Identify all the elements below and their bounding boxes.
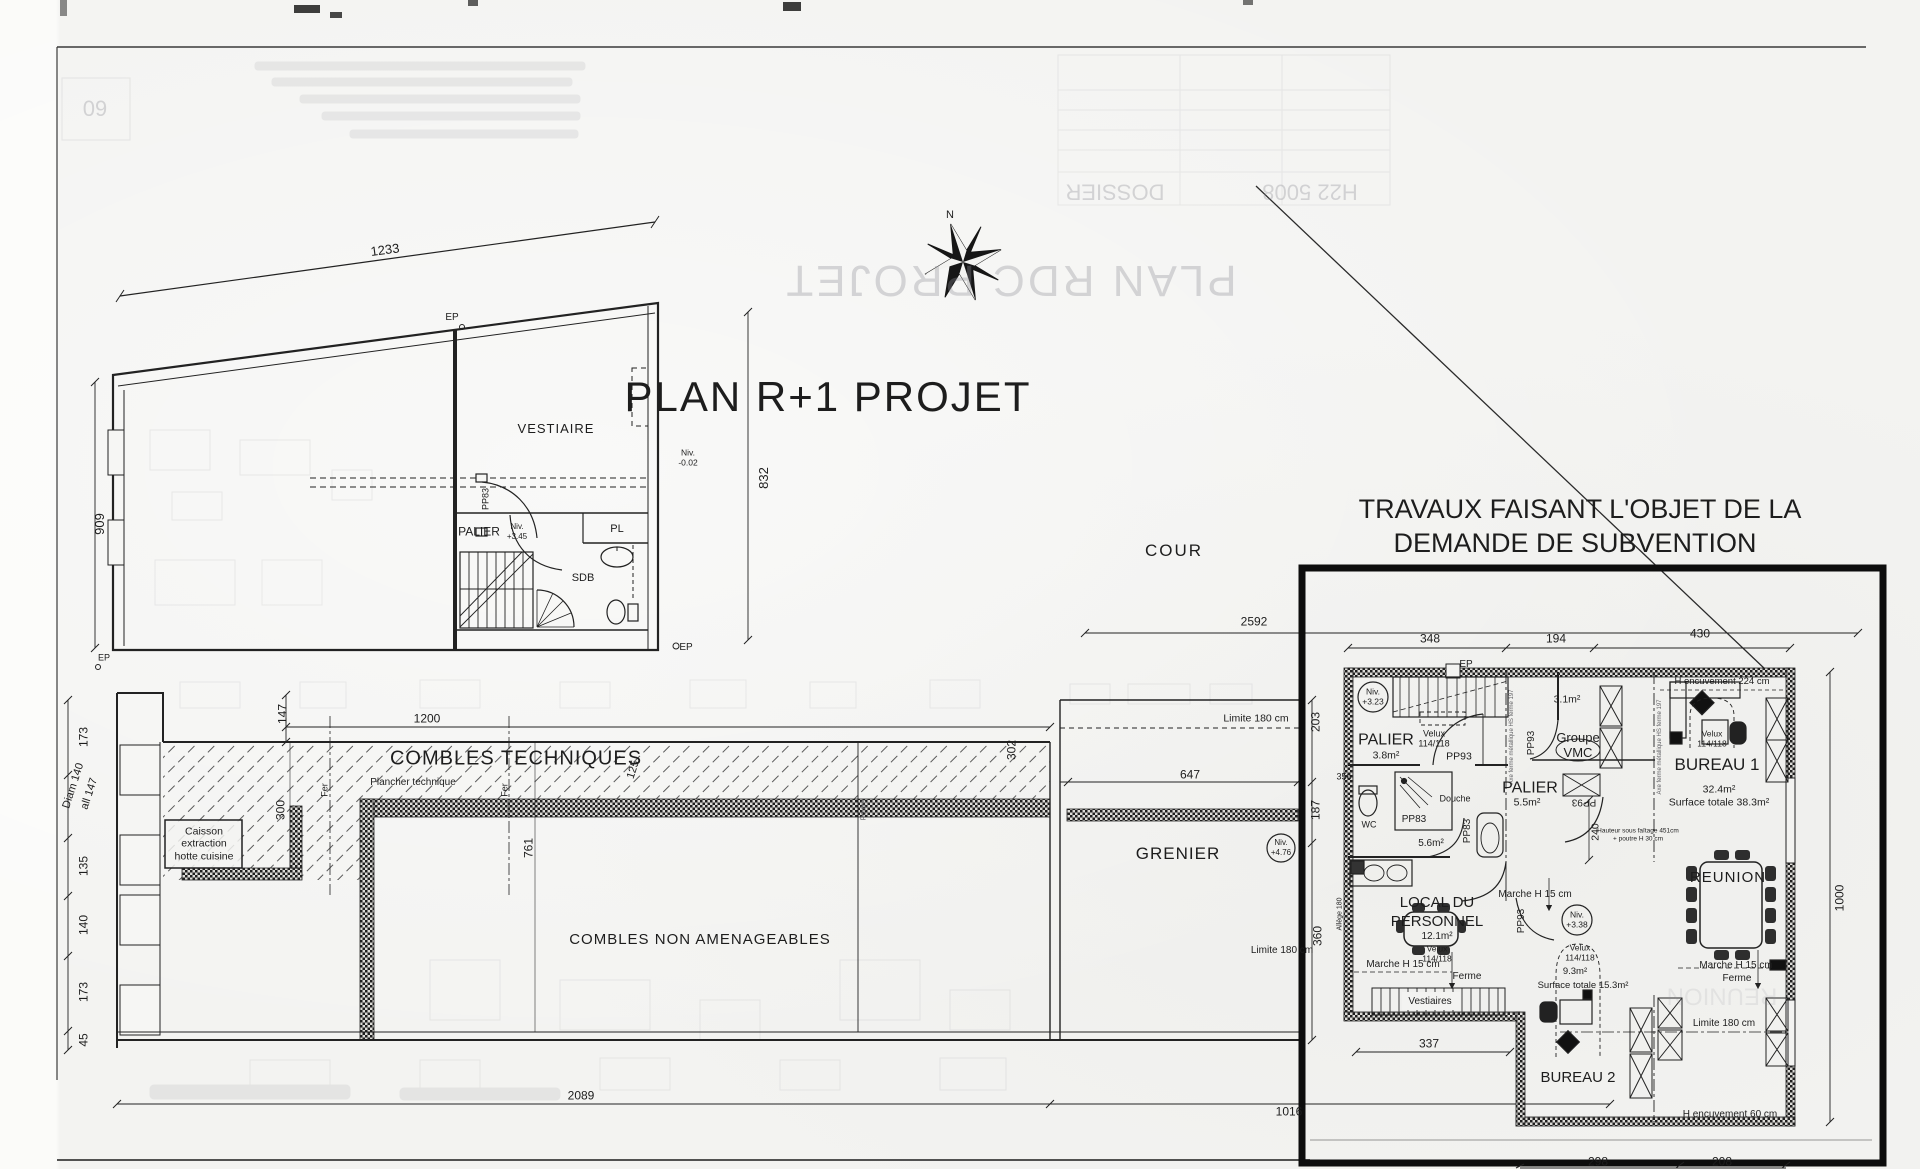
caisson-l1: Caisson — [185, 826, 223, 837]
dim-173b: 173 — [78, 982, 91, 1002]
door-pp93-vmc: PP93 — [1527, 731, 1538, 755]
local-surface: 12.1m² — [1421, 932, 1452, 943]
axis-fer-1: Fer — [320, 783, 329, 797]
marche-local: Marche H 15 cm — [1366, 960, 1439, 971]
palier-2-surface: 5.5m² — [1514, 797, 1541, 808]
room-bureau-2: BUREAU 2 — [1540, 1070, 1615, 1086]
marche-palier2: Marche H 15 cm — [1498, 890, 1571, 901]
bleed-mirrored-title: PLAN RDC PROJET — [783, 257, 1236, 303]
ferme-reunion: Ferme — [1723, 974, 1752, 985]
dim-1200: 1200 — [414, 713, 441, 726]
dim-194: 194 — [1546, 633, 1566, 646]
room-sdb: SDB — [572, 573, 595, 585]
dim-298: 298 — [1588, 1156, 1608, 1169]
niv-323-l1: Niv. — [1366, 688, 1380, 697]
velux-b1-l2: 114/118 — [1697, 740, 1726, 749]
door-pp83-upper: PP83 — [481, 488, 490, 510]
limite-180-bureau2: Limite 180 cm — [1693, 1019, 1755, 1030]
velux-b1-l1: Velux — [1702, 730, 1723, 739]
dim-208: 208 — [1712, 1156, 1732, 1169]
dim-147: 147 — [277, 704, 290, 724]
groupe-vmc-l2: VMC — [1564, 746, 1593, 760]
dim-45: 45 — [78, 1033, 91, 1046]
dim-135: 135 — [78, 856, 91, 876]
bureau-2-surface: 9.3m² — [1563, 967, 1587, 977]
vmc-surface: 3.1m² — [1554, 694, 1581, 705]
ep-roof-label: EP — [445, 313, 458, 324]
dim-203: 203 — [1310, 712, 1323, 732]
room-local-l2: PERSONNEL — [1391, 914, 1484, 930]
door-pp93-flip: PP93 — [1572, 796, 1596, 807]
niv-476-l1: Niv. — [1274, 839, 1287, 847]
room-pl: PL — [610, 524, 623, 536]
room-combles-non-amenageables: COMBLES NON AMENAGEABLES — [569, 932, 831, 948]
axis-poutre: Poutre — [860, 800, 867, 821]
room-local-l1: LOCAL DU — [1400, 895, 1474, 911]
room-combles-techniques: COMBLES TECHNIQUES — [390, 749, 642, 770]
dim-1000: 1000 — [1834, 885, 1847, 912]
bleed-titleblock-left: DOSSIER — [1065, 180, 1164, 203]
label-layer: PLAN R+1 PROJET TRAVAUX FAISANT L'OBJET … — [0, 0, 1920, 1169]
ep-zone-label: EP — [1459, 660, 1472, 671]
caisson-l3: hotte cuisine — [175, 851, 234, 862]
subvention-note-line2: DEMANDE DE SUBVENTION — [1393, 529, 1756, 557]
bleed-sheet-number: 60 — [83, 96, 107, 119]
dim-allege-180: Allège 180 — [1336, 897, 1343, 930]
niv-minus002-l2: -0.02 — [678, 459, 697, 468]
compass-north-label: N — [946, 210, 954, 222]
dim-140: 140 — [78, 915, 91, 935]
axis-ferme-1: Axe ferme métallique HS ferme 197 — [1509, 689, 1515, 784]
groupe-vmc-l1: Groupe — [1556, 731, 1599, 745]
ep-attic-label: EP — [98, 653, 110, 662]
dim-125: 125 — [626, 759, 643, 780]
sdb-surface: 5.6m² — [1418, 839, 1444, 850]
note-encuvement-224: H encuvement 224 cm — [1674, 677, 1769, 687]
dim-300: 300 — [275, 800, 288, 820]
note-plancher-technique: Plancher technique — [370, 778, 456, 789]
limite-180-grenier-haut: Limite 180 cm — [1223, 713, 1288, 724]
closet-vestiaires: Vestiaires — [1408, 997, 1451, 1008]
bureau-1-surface-totale: Surface totale 38.3m² — [1669, 797, 1769, 808]
door-pp93-bureau2: PP93 — [1517, 909, 1528, 933]
niv-338-l1: Niv. — [1570, 911, 1584, 920]
door-pp83-a: PP83 — [1402, 815, 1426, 826]
dim-2592: 2592 — [1241, 616, 1268, 629]
note-faitage-l1: Hauteur sous faîtage 451cm — [1597, 829, 1679, 836]
door-pp93-palier: PP93 — [1446, 751, 1472, 762]
scanned-plan-sheet: PLAN R+1 PROJET TRAVAUX FAISANT L'OBJET … — [0, 0, 1920, 1169]
dim-356: 356 — [1336, 772, 1351, 781]
dim-430: 430 — [1690, 628, 1710, 641]
niv-476-l2: +4.76 — [1271, 849, 1291, 857]
limite-180-grenier-bas: Limite 180 cm — [1251, 946, 1313, 957]
dim-all147: all 147 — [79, 777, 100, 811]
dim-647: 647 — [1180, 769, 1200, 782]
niv-345-l2: +3.45 — [507, 533, 527, 541]
caisson-l2: extraction — [181, 838, 227, 849]
room-reunion: REUNION — [1690, 870, 1766, 886]
door-pp83-b: PP83 — [1463, 819, 1474, 843]
dim-337: 337 — [1419, 1038, 1439, 1051]
fixture-douche: Douche — [1439, 794, 1470, 803]
dim-909: 909 — [93, 513, 107, 535]
velux-local-l1: Velux — [1427, 945, 1448, 954]
dim-348: 348 — [1420, 633, 1440, 646]
room-palier-upper: PALIER — [458, 526, 500, 539]
dim-173a: 173 — [78, 727, 91, 747]
fixture-wc: WC — [1362, 820, 1377, 829]
dim-187: 187 — [1310, 800, 1323, 820]
velux-b2-l2: 114/118 — [1565, 954, 1594, 963]
room-vestiaire: VESTIAIRE — [518, 422, 595, 436]
dim-360: 360 — [1312, 926, 1325, 946]
velux-b2-l1: Velux — [1570, 944, 1591, 953]
axis-ferme-2: Axe ferme métallique HS ferme 197 — [1657, 699, 1663, 794]
ferme-local: Ferme — [1453, 972, 1482, 983]
axis-fer-2: Fer — [500, 783, 509, 797]
room-palier-2: PALIER — [1502, 781, 1558, 798]
bleed-mirrored-room: REUNION — [1667, 983, 1778, 1008]
bleed-titleblock-right: H22 5008 — [1262, 180, 1357, 203]
dim-832: 832 — [757, 467, 771, 489]
niv-323-l2: +3.23 — [1362, 698, 1384, 707]
bureau-2-surface-totale: Surface totale 15.3m² — [1538, 981, 1629, 991]
palier-1-surface: 3.8m² — [1373, 750, 1400, 761]
niv-345-l1: Niv. — [510, 523, 523, 531]
dim-1016: 1016 — [1276, 1106, 1303, 1119]
dim-761: 761 — [523, 838, 536, 858]
bureau-1-surface: 32.4m² — [1703, 784, 1736, 795]
note-encuvement-60: H encuvement 60 cm — [1683, 1110, 1778, 1121]
courtyard-label: COUR — [1145, 542, 1203, 560]
note-faitage-l2: + poutre H 30 cm — [1613, 837, 1663, 844]
page-title: PLAN R+1 PROJET — [625, 375, 1032, 419]
ep-bottom-label: EP — [679, 643, 692, 654]
niv-minus002-l1: Niv. — [681, 449, 695, 458]
dim-302: 302 — [1006, 740, 1019, 760]
dim-2089: 2089 — [568, 1090, 595, 1103]
marche-reunion: Marche H 15 cm — [1699, 961, 1772, 972]
velux-palier-l2: 114/118 — [1418, 739, 1449, 748]
niv-338-l2: +3.38 — [1566, 921, 1588, 930]
room-grenier: GRENIER — [1136, 845, 1220, 863]
dim-1233: 1233 — [370, 241, 400, 258]
subvention-note-line1: TRAVAUX FAISANT L'OBJET DE LA — [1359, 495, 1802, 523]
room-bureau-1: BUREAU 1 — [1674, 756, 1759, 774]
room-palier-1: PALIER — [1358, 733, 1414, 750]
